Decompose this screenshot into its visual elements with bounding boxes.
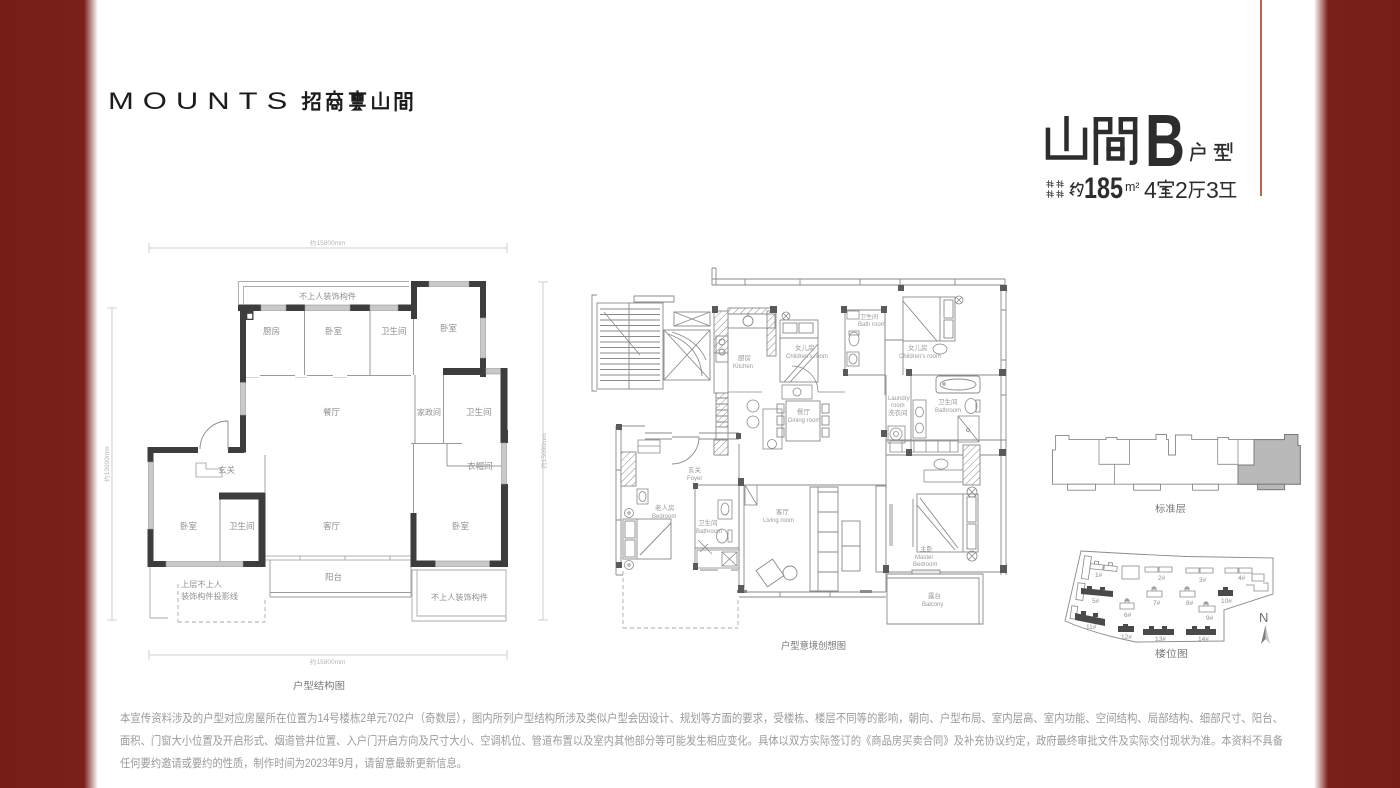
svg-text:面积、门窗大小位置及开启形式、烟道管井位置、入户门开启方向及: 面积、门窗大小位置及开启形式、烟道管井位置、入户门开启方向及尺寸大小、空调机位、… (120, 734, 1283, 748)
svg-text:任何要约邀请或要约的性质，制作时间为2023年9月，请留意最: 任何要约邀请或要约的性质，制作时间为2023年9月，请留意最新更新信息。 (120, 756, 467, 770)
svg-text:本宣传资料涉及的户型对应房屋所在位置为14号楼栋2单元702: 本宣传资料涉及的户型对应房屋所在位置为14号楼栋2单元702户（奇数层），图内所… (120, 711, 1283, 725)
